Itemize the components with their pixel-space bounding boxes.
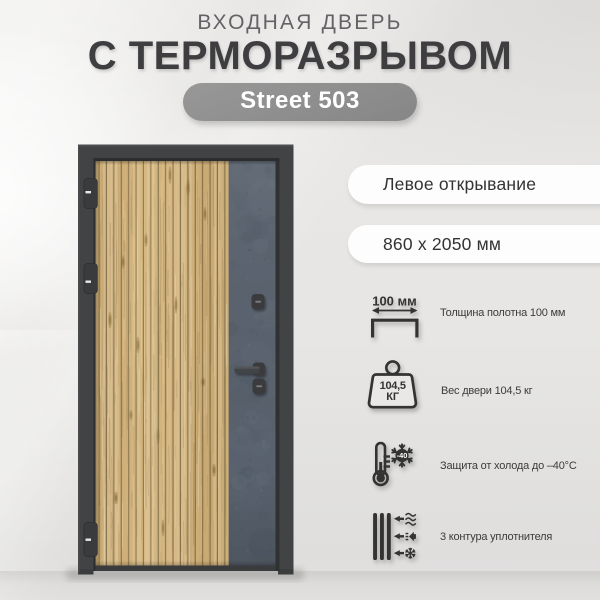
svg-text:100 мм: 100 мм xyxy=(372,294,417,309)
svg-text:КГ: КГ xyxy=(386,391,400,403)
svg-text:-40: -40 xyxy=(397,451,408,460)
